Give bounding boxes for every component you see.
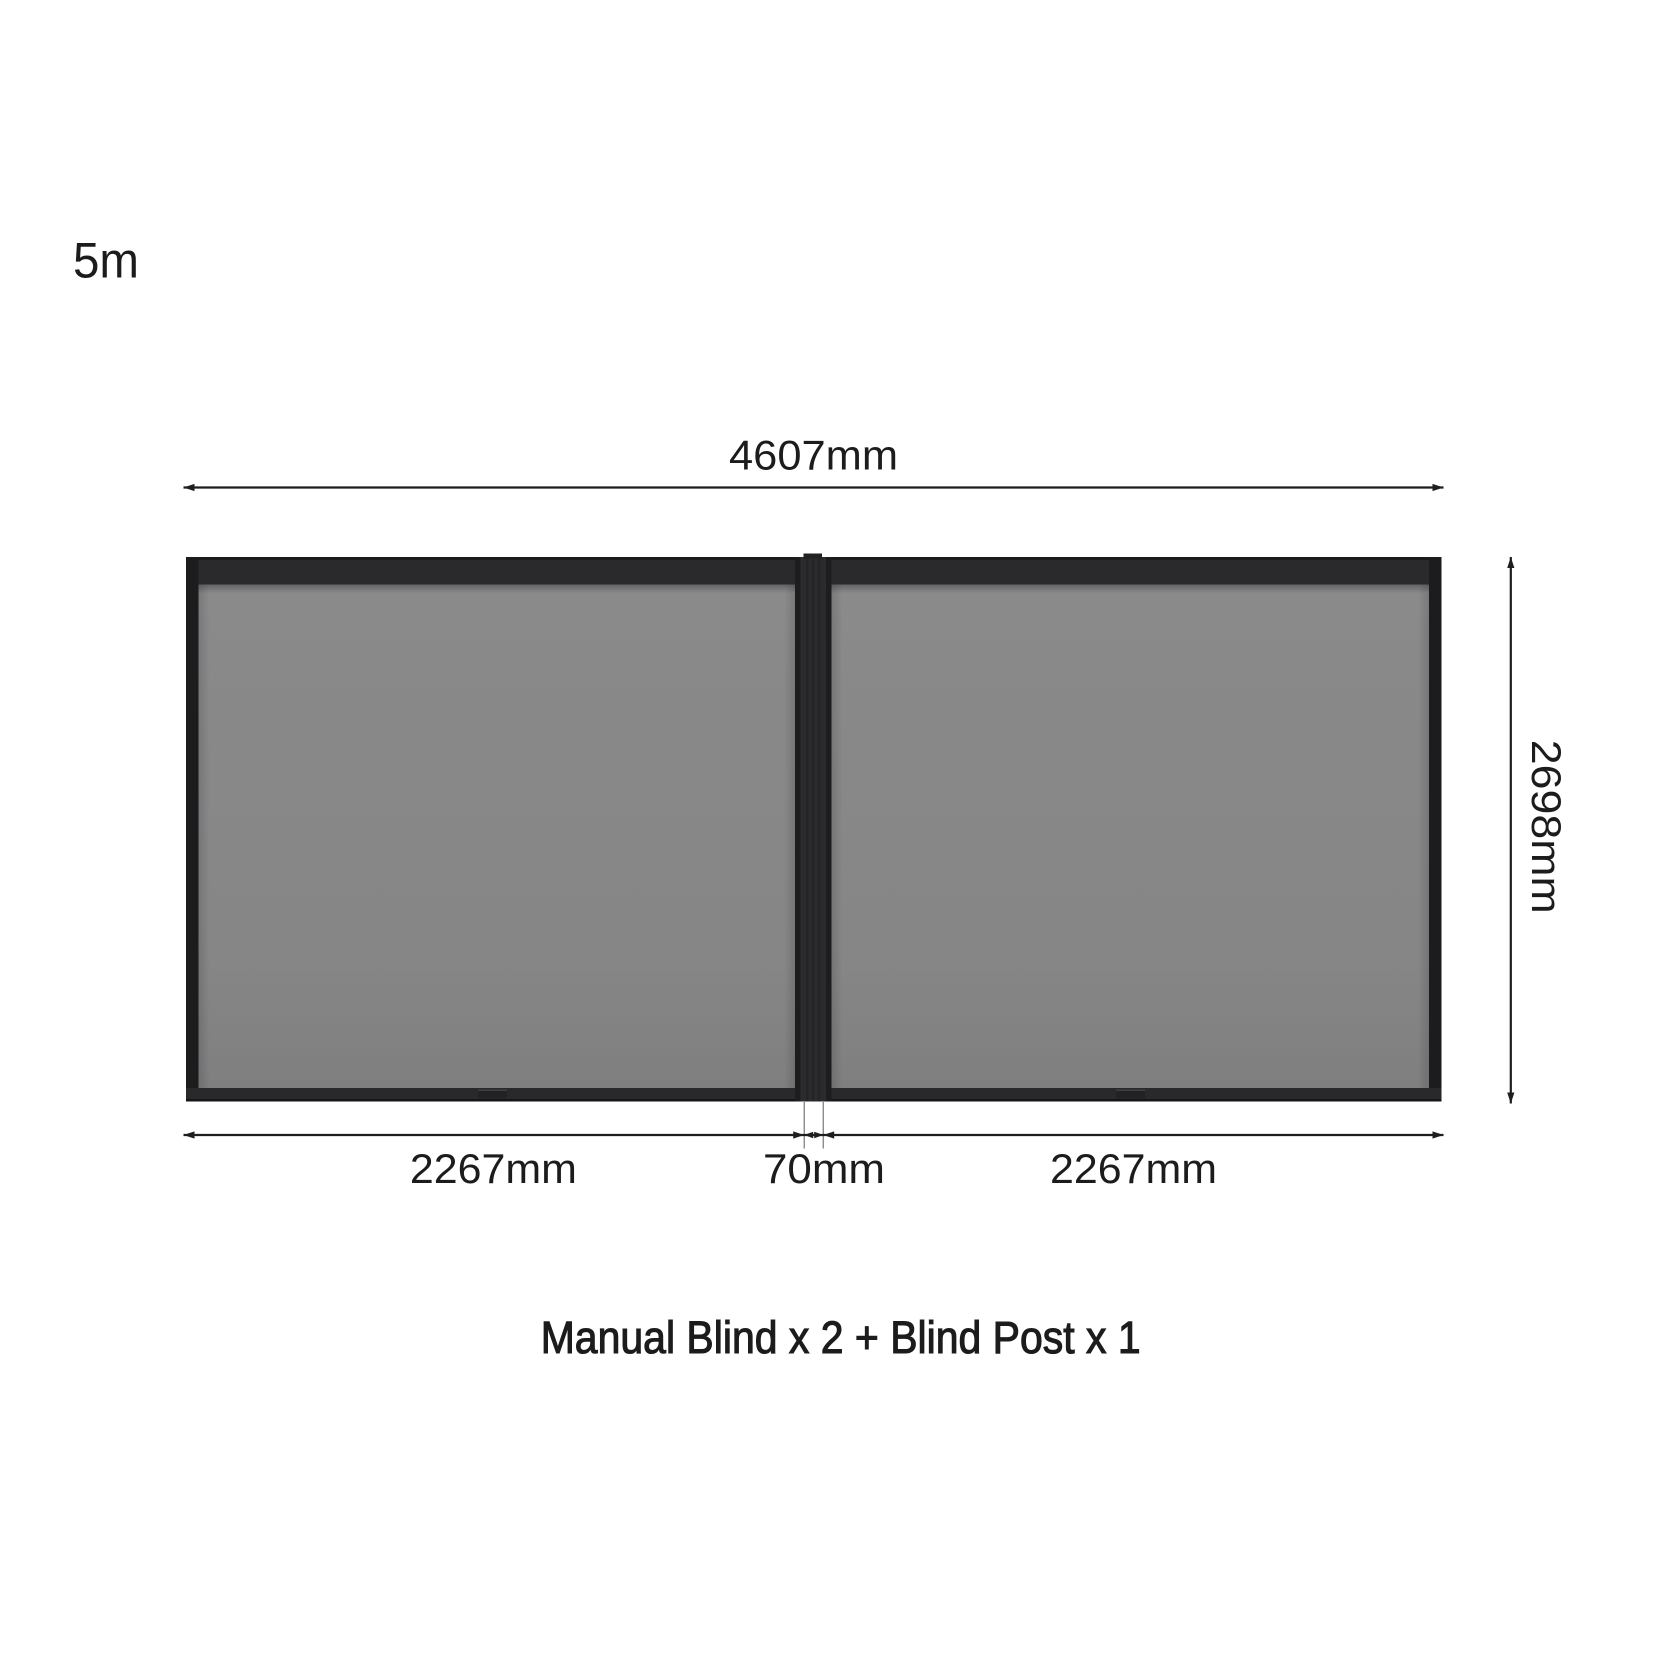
- svg-text:70mm: 70mm: [763, 1145, 885, 1192]
- svg-text:2267mm: 2267mm: [1050, 1145, 1217, 1192]
- svg-text:2698mm: 2698mm: [1523, 740, 1570, 914]
- svg-text:2267mm: 2267mm: [410, 1145, 577, 1192]
- svg-text:5m: 5m: [73, 233, 139, 289]
- svg-text:Manual Blind x 2 + Blind Post: Manual Blind x 2 + Blind Post x 1: [541, 1312, 1141, 1363]
- svg-text:4607mm: 4607mm: [729, 432, 898, 479]
